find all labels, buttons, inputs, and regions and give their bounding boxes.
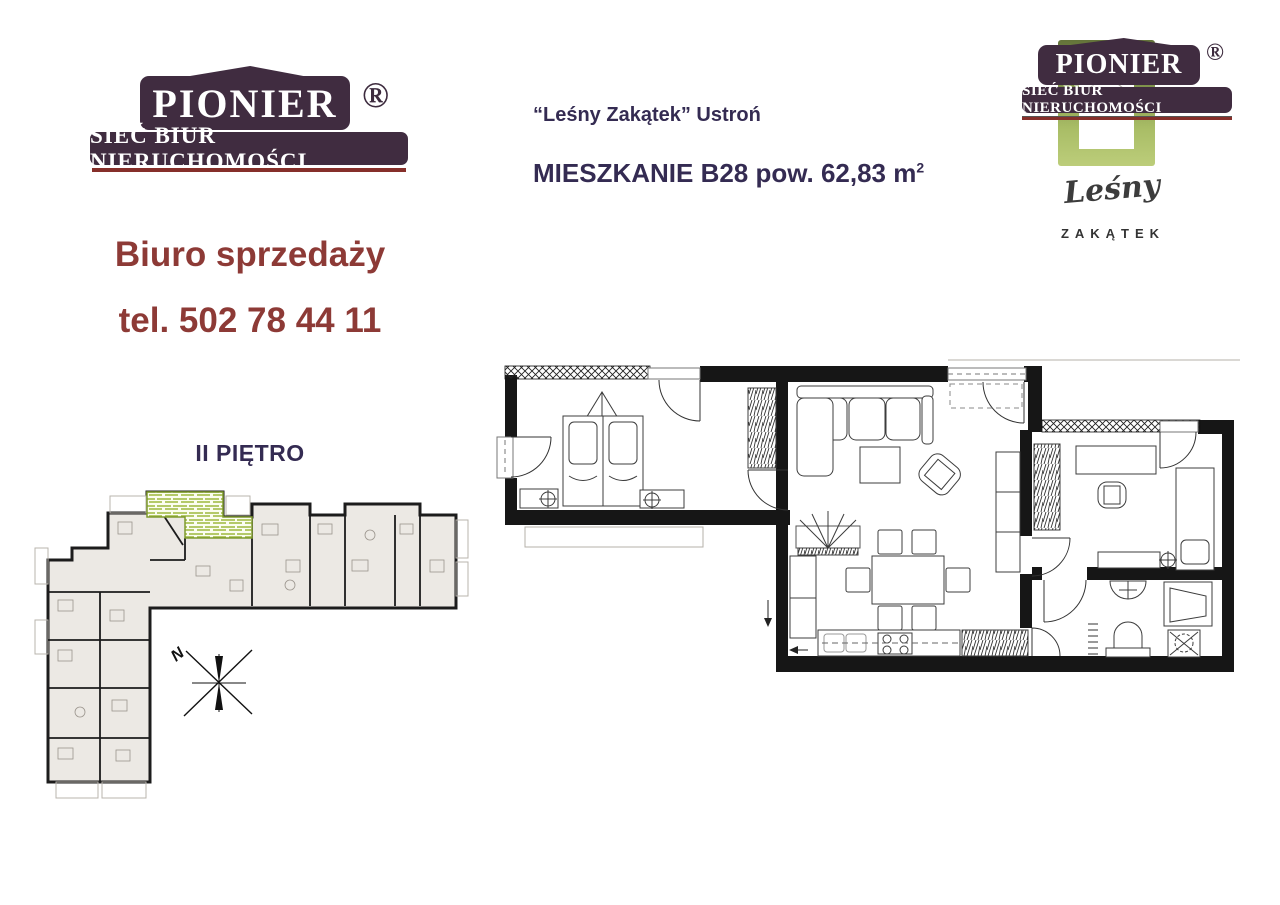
bedroom2-furniture [1034,444,1214,570]
logo-name-text: PIONIER [1056,49,1183,81]
hall-wardrobe [962,630,1028,656]
tall-cabinet [790,598,816,638]
desk [1076,446,1156,474]
tv-sideboard [996,452,1020,572]
wardrobe [748,388,776,468]
bedroom1-furniture [520,388,776,509]
pionier-logo-corner: PIONIER ® SIEĆ BIUR NIERUCHOMOŚCI [1022,38,1234,122]
compass-rose: N [168,644,252,716]
toilet-cistern [1106,648,1150,657]
registered-trademark-icon: ® [1206,40,1224,67]
radiator [1088,624,1098,654]
fridge [790,556,816,598]
offer-sheet-page: PIONIER ® SIEĆ BIUR NIERUCHOMOŚCI Leśny … [0,0,1280,905]
single-bed [1176,468,1214,570]
building-overview-plan: N [35,492,468,798]
dining-set [846,530,970,630]
bathroom-fixtures [1088,581,1212,657]
apartment-floor-plan [497,360,1240,672]
washing-machine [1168,630,1200,657]
armchair [915,450,964,498]
wardrobe [1034,444,1060,530]
logo-underline [1022,116,1232,120]
estate-name-caps: ZAKĄTEK [1048,226,1178,241]
logo-subtitle-bar: SIEĆ BIUR NIERUCHOMOŚCI [1022,87,1232,113]
low-cabinet [1098,552,1160,568]
logo-subtitle-text: SIEĆ BIUR NIERUCHOMOŚCI [1022,83,1232,117]
entry-coat-area [796,511,860,555]
logo-name-box: PIONIER [1038,45,1200,85]
living-room-furniture [764,386,1028,656]
compass-north-label: N [168,644,188,665]
coffee-table [860,447,900,483]
toilet [1114,622,1142,648]
